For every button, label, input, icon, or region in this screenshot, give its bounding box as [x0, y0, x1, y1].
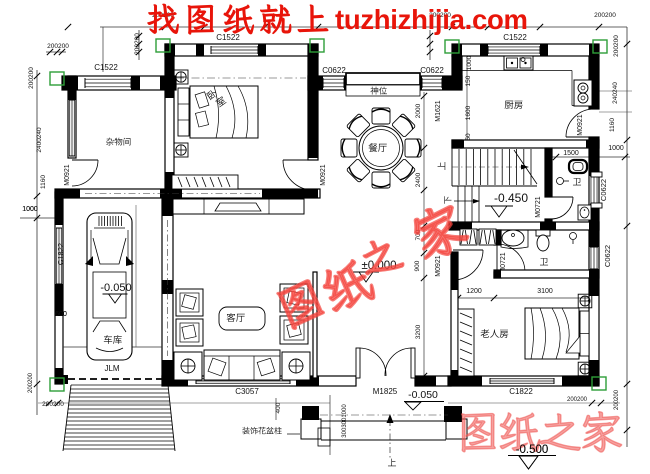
svg-text:M0921: M0921	[64, 164, 71, 186]
svg-text:1500: 1500	[563, 150, 579, 157]
svg-text:2400240: 2400240	[36, 127, 43, 153]
svg-text:C0622: C0622	[603, 245, 612, 267]
svg-text:240240: 240240	[612, 82, 619, 104]
svg-text:C1522: C1522	[216, 33, 240, 42]
svg-text:200200: 200200	[28, 372, 34, 393]
svg-text:C0622: C0622	[420, 66, 444, 75]
svg-text:200200: 200200	[594, 12, 616, 19]
svg-text:M0921: M0921	[577, 114, 584, 136]
svg-text:3100: 3100	[537, 288, 553, 295]
svg-text:150: 150	[465, 75, 472, 86]
svg-text:C1822: C1822	[509, 387, 533, 396]
svg-text:200200: 200200	[28, 67, 35, 89]
svg-text:C1822: C1822	[56, 243, 65, 265]
svg-text:-0.450: -0.450	[494, 191, 528, 205]
svg-text:200200: 200200	[613, 35, 620, 57]
svg-text:M0921: M0921	[435, 255, 442, 277]
svg-text:1200: 1200	[466, 288, 482, 295]
svg-text:M0721: M0721	[535, 196, 542, 218]
svg-text:600: 600	[55, 311, 67, 318]
svg-text:3200: 3200	[415, 324, 422, 339]
svg-text:tuzhizhijia.com: tuzhizhijia.com	[335, 4, 528, 35]
svg-text:1000: 1000	[22, 206, 38, 213]
svg-text:1000: 1000	[466, 55, 473, 70]
svg-text:M1825: M1825	[373, 387, 398, 396]
svg-text:C3057: C3057	[235, 387, 259, 396]
svg-text:C0622: C0622	[599, 179, 608, 201]
svg-text:1000: 1000	[608, 145, 624, 152]
svg-text:1160: 1160	[40, 175, 47, 189]
svg-text:1160: 1160	[609, 118, 616, 132]
svg-text:M1621: M1621	[435, 100, 442, 122]
svg-text:200200: 200200	[42, 401, 64, 408]
svg-text:2000: 2000	[415, 103, 422, 118]
svg-text:C1522: C1522	[94, 63, 118, 72]
svg-text:200200: 200200	[614, 389, 620, 410]
svg-text:M0921: M0921	[320, 164, 327, 186]
svg-text:JLM: JLM	[104, 364, 119, 373]
svg-text:-0.050: -0.050	[100, 282, 131, 294]
svg-text:2400: 2400	[415, 172, 422, 187]
svg-text:-0.050: -0.050	[408, 389, 438, 401]
svg-text:C0622: C0622	[322, 66, 346, 75]
svg-text:200200: 200200	[567, 397, 588, 403]
svg-text:200200: 200200	[47, 43, 69, 50]
svg-text:900: 900	[414, 260, 421, 271]
svg-text:-0.500: -0.500	[516, 444, 549, 456]
svg-text:1600: 1600	[465, 105, 472, 120]
